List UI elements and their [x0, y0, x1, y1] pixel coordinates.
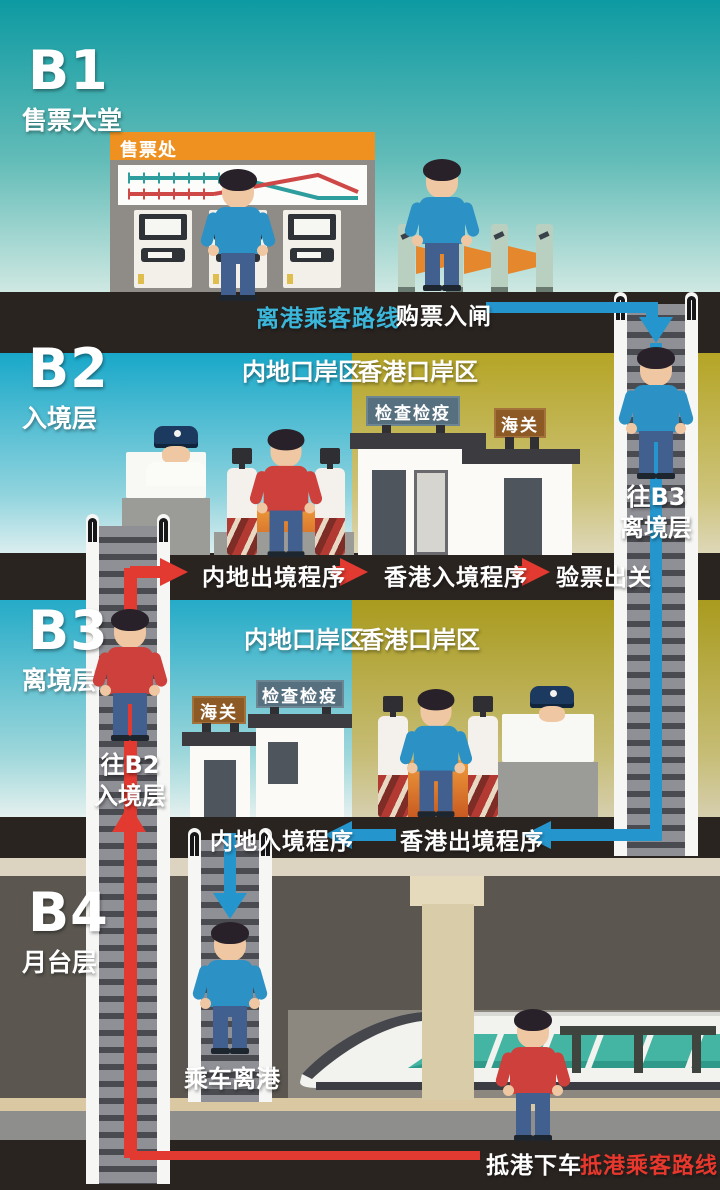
floor-name-b4: 月台层: [22, 943, 97, 979]
depart-route-legend: 离港乘客路线: [256, 299, 400, 333]
booth-door: [414, 470, 448, 555]
booth-window: [268, 742, 298, 784]
officer-face: [539, 706, 565, 722]
b2-hongkong-zone-label: 香港口岸区: [358, 352, 478, 387]
step-mainland-exit: 内地出境程序: [202, 558, 346, 592]
step-hk-entry: 香港入境程序: [384, 558, 528, 592]
depart-route-line: [352, 829, 396, 841]
arrive-route-legend: 抵港乘客路线: [580, 1148, 718, 1180]
b3-hongkong-zone-label: 香港口岸区: [360, 620, 480, 655]
passenger-on-escalator-to-b3: [624, 350, 688, 480]
station-levels-infographic: 售票处: [0, 0, 720, 1190]
step-ticket-check-exit: 验票出关: [556, 558, 652, 592]
floor-name-b1: 售票大堂: [22, 101, 122, 137]
booth-door: [372, 470, 406, 555]
platform-pillar: [422, 904, 474, 1100]
ticket-machine: [134, 210, 192, 288]
officer-body: [146, 462, 206, 486]
customs-sign: 海关: [494, 408, 546, 438]
passenger-on-escalator-to-b2: [98, 612, 162, 742]
step-buy-ticket: 购票入闸: [396, 297, 492, 331]
arrow-down-icon: [639, 317, 673, 343]
railing-post: [634, 1035, 643, 1073]
passenger-on-escalator-to-b4: [198, 925, 262, 1055]
customs-sign: 海关: [192, 696, 246, 724]
fare-gate-pillar: [536, 224, 553, 292]
gate-screen-icon: [473, 696, 493, 712]
e-channel-pillar: [378, 716, 408, 817]
arrow-down-icon: [213, 893, 247, 919]
booth-roof: [182, 732, 258, 746]
gate-screen-icon: [383, 696, 403, 712]
counter-base: [498, 762, 598, 817]
e-channel-pillar: [315, 468, 345, 555]
passenger-at-fare-gate: [410, 162, 474, 292]
booth-roof: [248, 714, 352, 728]
arrive-route-line: [130, 566, 160, 578]
ticket-office-label: 售票处: [120, 136, 177, 162]
floor-code-b3: B3: [28, 604, 109, 658]
inspection-sign: 检查检疫: [366, 396, 460, 426]
b3-mainland-zone-label: 内地口岸区: [244, 620, 364, 655]
b2-mainland-zone-label: 内地口岸区: [242, 352, 362, 387]
passenger-at-e-channel: [255, 432, 317, 558]
step-hk-exit: 香港出境程序: [400, 822, 544, 856]
e-channel-pillar: [227, 468, 257, 555]
booth-roof: [350, 433, 486, 449]
floor-code-b1: B1: [28, 44, 109, 98]
arrive-route-line: [130, 1151, 480, 1160]
step-alight: 抵港下车: [486, 1146, 582, 1180]
arrow-right-icon: [160, 558, 188, 586]
platform-railing: [560, 1026, 716, 1035]
to-b3-departure-label: 往B3离境层: [596, 482, 716, 544]
arriving-passenger: [501, 1012, 565, 1142]
booth-roof: [462, 449, 580, 464]
depart-route-line: [551, 829, 656, 841]
ticket-machine: [283, 210, 341, 288]
floor-name-b3: 离境层: [22, 661, 97, 697]
e-channel-pillar: [468, 716, 498, 817]
passenger-at-ticket-machine: [206, 172, 270, 302]
officer-cap-icon: [154, 426, 198, 448]
to-b2-arrival-label: 往B2入境层: [68, 750, 192, 812]
floor-code-b2: B2: [28, 342, 109, 396]
railing-post: [692, 1035, 701, 1073]
floor-name-b2: 入境层: [22, 399, 97, 435]
depart-route-line: [486, 302, 652, 313]
platform-pillar-cap: [410, 876, 484, 906]
railing-post: [572, 1035, 581, 1073]
gate-screen-icon: [232, 448, 252, 464]
officer-cap-icon: [530, 686, 574, 708]
board-train-label: 乘车离港: [140, 1064, 324, 1095]
fare-gate-pillar: [491, 224, 508, 292]
step-mainland-entry: 内地入境程序: [210, 822, 354, 856]
ticket-office-sign: 售票处: [110, 132, 375, 160]
booth-door: [204, 760, 236, 817]
floor-code-b4: B4: [28, 886, 109, 940]
passenger-at-e-channel: [405, 692, 467, 818]
booth-door: [504, 478, 542, 555]
gate-screen-icon: [320, 448, 340, 464]
inspection-sign: 检查检疫: [256, 680, 344, 708]
